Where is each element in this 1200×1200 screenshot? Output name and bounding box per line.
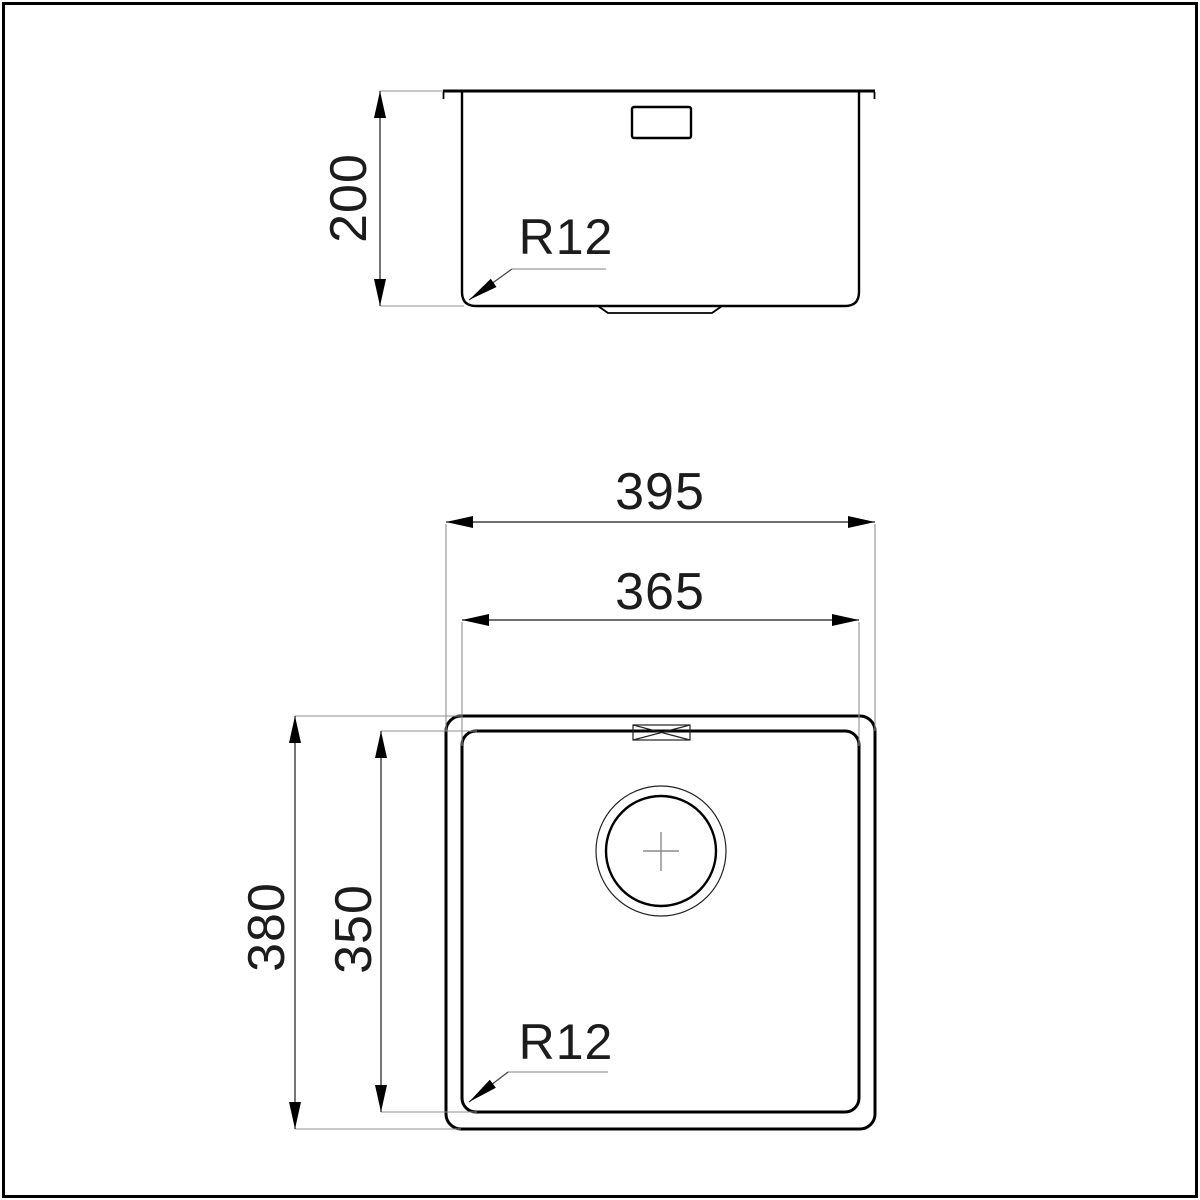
dim-395-arrow-left-icon [446,516,473,528]
dim-350-arrow-up-icon [375,731,387,758]
dim-350: 350 [325,731,477,1112]
dim-365-value: 365 [615,563,705,621]
bowl-section-outline [462,92,859,306]
radius-callout-plan-arrow-icon [469,1080,496,1102]
dim-350-value: 350 [325,884,383,974]
dim-380-arrow-down-icon [289,1102,301,1129]
dim-365: 365 [462,563,859,746]
drain [596,786,726,916]
dim-350-arrow-down-icon [375,1085,387,1112]
dim-365-arrow-left-icon [462,614,489,626]
overflow-hole [632,107,691,138]
plan-view: 395 365 380 350 [238,463,875,1129]
technical-drawing-canvas: 200 R12 [0,0,1200,1200]
dim-395-value: 395 [615,463,705,521]
radius-callout-section-label: R12 [519,209,614,265]
radius-callout-plan-label: R12 [519,1014,614,1070]
radius-callout-section-arrow-icon [469,279,497,300]
dim-380-arrow-up-icon [289,716,301,743]
section-view: 200 R12 [320,91,875,313]
dim-200-arrow-up-icon [374,91,386,118]
outer-rim-outline [446,716,875,1129]
dim-200-arrow-down-icon [374,279,386,306]
radius-callout-section: R12 [469,209,613,300]
dim-380-value: 380 [238,882,296,972]
dim-395-arrow-right-icon [848,516,875,528]
radius-callout-plan: R12 [469,1014,613,1102]
dim-365-arrow-right-icon [832,614,859,626]
dim-200: 200 [320,91,464,306]
dim-200-value: 200 [320,153,378,243]
